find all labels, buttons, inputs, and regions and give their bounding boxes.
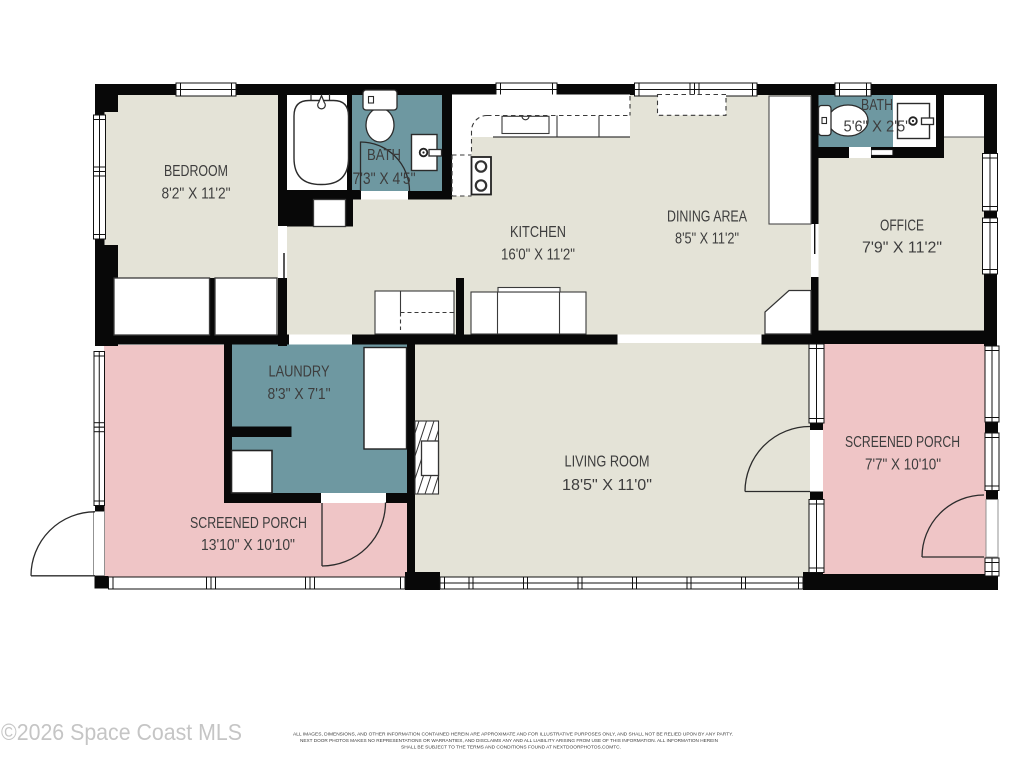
svg-text:©2026 Space Coast MLS: ©2026 Space Coast MLS: [1, 719, 242, 745]
svg-text:KITCHEN: KITCHEN: [510, 224, 566, 241]
svg-text:SHALL BE SUBJECT TO THE TERMS: SHALL BE SUBJECT TO THE TERMS AND CONDIT…: [401, 745, 621, 751]
svg-text:5'6" X 2'5": 5'6" X 2'5": [844, 119, 911, 136]
svg-text:16'0" X 11'2": 16'0" X 11'2": [501, 247, 575, 264]
svg-text:8'3" X 7'1": 8'3" X 7'1": [268, 386, 331, 403]
svg-text:13'10" X 10'10": 13'10" X 10'10": [201, 537, 295, 554]
svg-text:7'7" X 10'10": 7'7" X 10'10": [865, 457, 941, 474]
svg-text:8'5" X 11'2": 8'5" X 11'2": [675, 231, 739, 248]
svg-text:7'3" X 4'5": 7'3" X 4'5": [353, 169, 416, 188]
svg-text:BATH: BATH: [861, 97, 893, 114]
svg-text:SCREENED PORCH: SCREENED PORCH: [845, 434, 960, 451]
svg-text:8'2" X 11'2": 8'2" X 11'2": [162, 186, 231, 203]
svg-text:ALL IMAGES, DIMENSIONS, AND OT: ALL IMAGES, DIMENSIONS, AND OTHER INFORM…: [293, 732, 733, 738]
svg-text:NEXT DOOR PHOTOS MAKES NO REPR: NEXT DOOR PHOTOS MAKES NO REPRESENTATION…: [300, 738, 718, 744]
svg-text:18'5" X 11'0": 18'5" X 11'0": [562, 477, 652, 494]
svg-text:OFFICE: OFFICE: [880, 218, 924, 235]
svg-text:SCREENED PORCH: SCREENED PORCH: [190, 515, 307, 532]
svg-text:BEDROOM: BEDROOM: [164, 163, 228, 180]
svg-text:LAUNDRY: LAUNDRY: [269, 364, 330, 381]
svg-text:7'9" X 11'2": 7'9" X 11'2": [862, 240, 942, 257]
svg-text:LIVING ROOM: LIVING ROOM: [565, 454, 650, 471]
svg-text:DINING AREA: DINING AREA: [667, 209, 748, 226]
svg-text:BATH: BATH: [367, 147, 401, 164]
